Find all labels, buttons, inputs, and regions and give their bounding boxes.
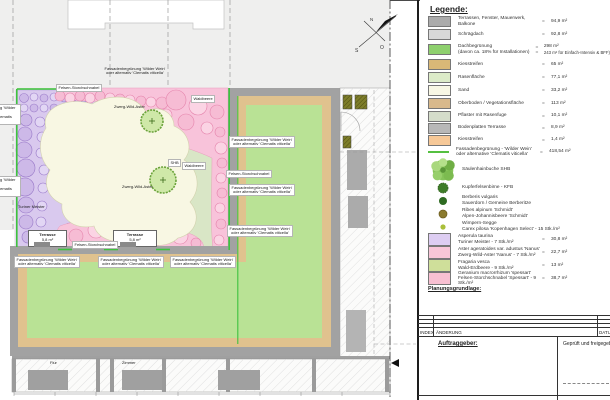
plant-label: Berberis vulgarisSauerdorn / Gemeine Ber… [462, 195, 531, 205]
area-label: Oberboden / Vegetationsfläche [458, 101, 542, 106]
area-label: Schrägdach [458, 32, 542, 37]
equals: = [542, 250, 551, 255]
equals: = [542, 19, 551, 24]
color-swatch [428, 29, 451, 40]
color-swatch [428, 98, 451, 109]
perennial-label: Fragaria vescaWald-Erdbeere - 9 Stk./m² [458, 260, 542, 270]
drawing-sheet: N S O Fassadenbegrünung 'Wilder Wein'ode… [0, 0, 610, 400]
label-zimmer: Zimmer [122, 361, 136, 366]
legend-area-row: Bodenplatten Terrasse = 8,9 m² [428, 122, 610, 134]
area-label: Kiesstreifen [458, 62, 542, 67]
perennial-value: 22,7 m² [551, 250, 567, 255]
revision-col-change: ÄNDERUNG [436, 330, 462, 335]
grass-dot-icon [428, 223, 458, 231]
legend-area-row: Sand = 33,2 m² [428, 84, 610, 97]
compass-o: O [380, 45, 384, 51]
area-value: 77,1 m² [551, 75, 567, 80]
area-label: Dachbegrünung(davon ca. 18% für Installa… [458, 44, 536, 54]
label-facade-greening: Fassadenbegrünung 'Wilder Wein'oder alte… [229, 184, 295, 196]
legend-area-row: Kiesstreifen = 1,4 m² [428, 134, 610, 146]
revision-col-index: INDEX [420, 330, 434, 335]
label-felsen-storchschnabel: Felsen-Storchschnabel [56, 84, 102, 92]
revision-col-date: DATUM [599, 330, 610, 335]
area-value: 8,9 m² [551, 125, 565, 130]
compass-n: N [370, 17, 373, 22]
area-value: 298 m²243 m² für Einfach-Intensiv & BFF) [544, 44, 610, 54]
label-facade-greening: Fassadenbegrünung 'Wilder Wein'oder alte… [98, 256, 164, 268]
area-label: Kiesstreifen [458, 137, 542, 142]
color-swatch [428, 111, 451, 122]
perennial-value: 13 m² [551, 263, 563, 268]
entrance-arrow-icon [391, 359, 399, 367]
legend-plant-row: Berberis vulgarisSauerdorn / Gemeine Ber… [428, 194, 610, 207]
legend-area-row: Rasenfläche = 77,1 m² [428, 71, 610, 84]
area-value: 65 m² [551, 62, 563, 67]
label-turiner-meister: Turiner Meister [18, 205, 45, 210]
legend-area-list: Terrassen, Fenster, Mauerwerk, Balkone =… [428, 15, 610, 285]
tree-icon [428, 182, 458, 194]
area-value: 94,9 m² [551, 19, 567, 24]
area-value: 10,1 m² [551, 113, 567, 118]
label-zwerg-wild-aster: Zwerg-Wild-Aster [114, 105, 145, 110]
legend-perennial-row: Geranium macrorrhizum 'spessart'Felsen-S… [428, 272, 610, 285]
legend-area-row: Pflaster mit Rasenfuge = 10,1 m² [428, 110, 610, 122]
area-value: 33,2 m² [551, 88, 567, 93]
building-interior-right [340, 88, 390, 358]
equals: = [542, 138, 551, 143]
client-label: Auftraggeber: [438, 341, 478, 347]
area-value: 1,4 m² [551, 137, 565, 142]
label-facade-greening-clipped: Fassadenbegrünung 'Wilder Wein'oder alte… [0, 176, 21, 197]
color-swatch [428, 85, 451, 96]
color-swatch [428, 44, 451, 55]
legend-area-row: Terrassen, Fenster, Mauerwerk, Balkone =… [428, 15, 610, 28]
site-plan: N S O Fassadenbegrünung 'Wilder Wein'ode… [0, 0, 418, 400]
label-facade-greening: Fassadenbegrünung 'Wilder Wein'oder alte… [227, 225, 293, 237]
legend-title: Legende: [430, 4, 468, 14]
legend-perennial-row: Aster ageratoides var. adustus 'Nanus'Zw… [428, 246, 610, 259]
color-swatch [428, 123, 451, 134]
plant-label: Wimpern-SeggeCarex pilosa 'Kopenhagen Se… [462, 221, 560, 231]
line-swatch [428, 151, 449, 154]
site-plan-svg: N S O [0, 0, 418, 400]
dimension-line [14, 392, 390, 396]
label-facade-greening: Fassadenbegrünung 'Wilder Wein'oder alte… [103, 66, 167, 76]
color-swatch [428, 272, 451, 285]
perennial-label: Geranium macrorrhizum 'spessart'Felsen-S… [458, 271, 542, 287]
area-value: 92,8 m² [551, 32, 567, 37]
color-swatch [428, 135, 451, 146]
perennial-value: 30,8 m² [551, 237, 567, 242]
equals: = [542, 114, 551, 119]
title-block: INDEX ÄNDERUNG DATUM Auftraggeber: Geprü… [418, 314, 610, 400]
perennial-label: Asperula taurinaTuriner Meister - 7 Stk.… [458, 234, 542, 244]
area-label: Rasenfläche [458, 75, 542, 80]
label-felsen-storchschnabel: Felsen-Storchschnabel [72, 241, 118, 249]
shrub-icon [428, 196, 458, 206]
equals: = [542, 263, 551, 268]
color-swatch [428, 72, 451, 83]
area-label: Terrassen, Fenster, Mauerwerk, Balkone [458, 16, 542, 26]
legend-plant-row: Säulenhainbuche SHB [428, 158, 610, 182]
color-swatch [428, 233, 451, 246]
color-swatch [428, 16, 451, 27]
large-tree-icon [428, 157, 458, 183]
equals: = [542, 276, 551, 281]
legend-plant-row: Kupferfelsenbirne - KFB [428, 182, 610, 194]
equals: = [542, 237, 551, 242]
installation-box [343, 136, 351, 148]
plant-label: Säulenhainbuche SHB [462, 167, 510, 172]
label-zwerg-wild-aster: Zwerg-Wild-Aster [122, 185, 153, 190]
legend-area-row: Oberboden / Vegetationsfläche = 113 m² [428, 97, 610, 110]
terrace-step [34, 242, 50, 247]
label-waldbeere: Waldbeere [182, 162, 206, 170]
perennial-label: Aster ageratoides var. adustus 'Nanus'Zw… [458, 247, 542, 257]
area-label: Pflaster mit Rasenfuge [458, 113, 542, 118]
terrace-step [120, 242, 136, 247]
legend-plant-row: Wimpern-SeggeCarex pilosa 'Kopenhagen Se… [428, 220, 610, 233]
label-facade-greening-clipped: Fassadenbegrünung 'Wilder Wein'oder alte… [0, 104, 21, 125]
equals: = [542, 62, 551, 67]
equals: == [536, 45, 544, 55]
area-value: 113 m² [551, 101, 566, 106]
shrub-icon [428, 209, 458, 219]
area-label: Bodenplatten Terrasse [458, 125, 542, 130]
color-swatch [428, 246, 451, 259]
equals: = [542, 88, 551, 93]
label-facade-greening: Fassadenbegrünung 'Wilder Wein'oder alte… [229, 136, 295, 148]
color-swatch [428, 59, 451, 70]
color-swatch [428, 259, 451, 272]
legend-area-row: Schrägdach = 92,8 m² [428, 28, 610, 41]
legend-area-row: Kiesstreifen = 65 m² [428, 58, 610, 71]
perennial-value: 38,7 m² [551, 276, 567, 281]
interior-fixture [346, 310, 366, 352]
area-label: Fassadenbegrünung - 'Wilder Wein'oder al… [456, 147, 540, 157]
equals: = [542, 75, 551, 80]
approved-label: Geprüft und freigegeben: [563, 341, 610, 347]
room-blocks [28, 370, 260, 390]
plant-label: Kupferfelsenbirne - KFB [462, 185, 513, 190]
equals: = [542, 101, 551, 106]
installation-box [343, 95, 352, 109]
area-label: Sand [458, 88, 542, 93]
label-waldbeere: Waldbeere [191, 95, 215, 103]
equals: = [540, 150, 549, 155]
legend-plant-row: Ribes alpinum 'Schmidt'Alpen-Johannisbee… [428, 207, 610, 220]
building-floorplan-band [12, 356, 390, 396]
legend-perennial-row: Asperula taurinaTuriner Meister - 7 Stk.… [428, 233, 610, 246]
label-facade-greening: Fassadenbegrünung 'Wilder Wein'oder alte… [170, 256, 236, 268]
equals: = [542, 126, 551, 131]
signature-line [563, 383, 609, 384]
label-shb: SHB [168, 159, 181, 167]
interior-fixture [347, 150, 367, 190]
label-flur: Flur [50, 361, 57, 366]
label-facade-greening: Fassadenbegrünung 'Wilder Wein'oder alte… [14, 256, 80, 268]
label-felsen-storchschnabel: Felsen-Storchschnabel [226, 170, 272, 178]
legend-area-row: Dachbegrünung(davon ca. 18% für Installa… [428, 41, 610, 58]
area-value: 418,54 m² [549, 149, 571, 154]
planning-basis-title: Planungsgrundlage: [428, 286, 481, 292]
interior-fixture [348, 196, 368, 228]
plant-label: Ribes alpinum 'Schmidt'Alpen-Johannisbee… [462, 208, 528, 218]
installation-box [355, 95, 367, 109]
equals: = [542, 32, 551, 37]
